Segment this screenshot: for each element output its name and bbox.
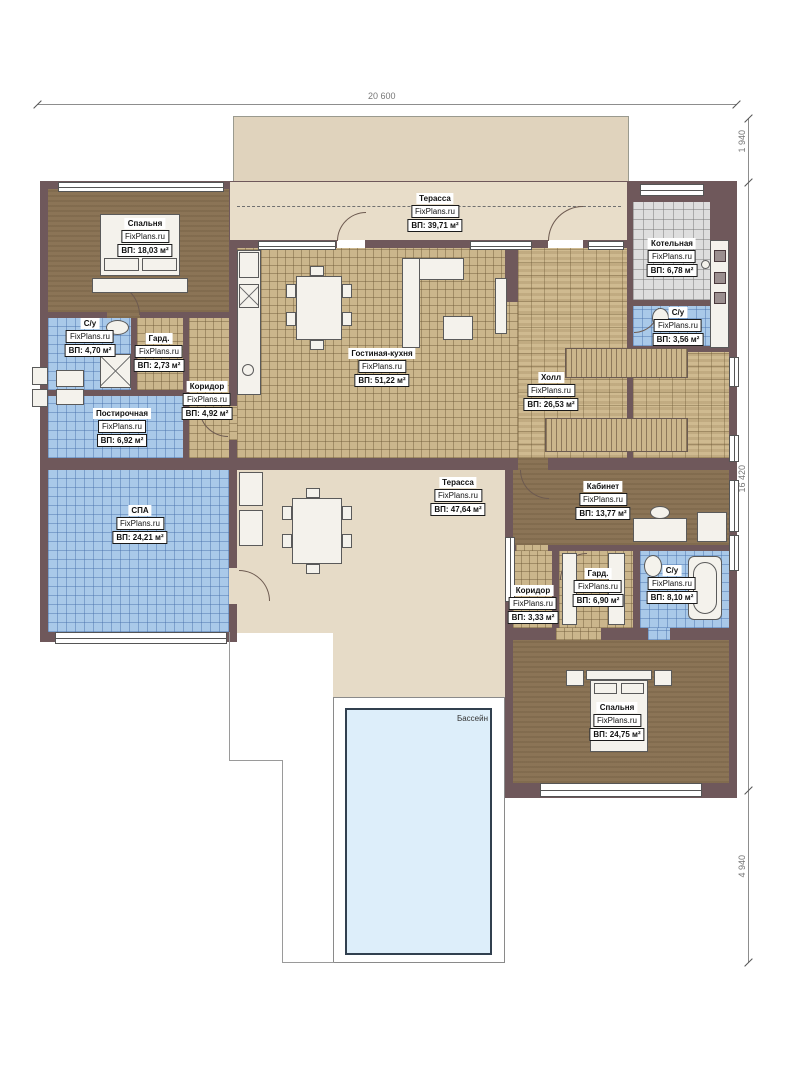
chair — [342, 312, 352, 326]
room-label-wc-boiler: С/у FixPlans.ru ВП: 3,56 м² — [653, 307, 704, 346]
room-label-wardrobe-right: Гард. FixPlans.ru ВП: 6,90 м² — [573, 568, 624, 607]
room-name: Коридор — [187, 381, 227, 392]
room-name: Спальня — [125, 218, 166, 229]
office-cabinet — [697, 512, 727, 542]
wall-mid-strip — [237, 462, 505, 470]
bed-bench — [92, 278, 188, 293]
room-area: ВП: 47,64 м² — [430, 503, 485, 516]
site-outline — [229, 760, 283, 761]
dim-top-label: 20 600 — [368, 91, 396, 101]
stove-icon — [239, 284, 259, 308]
dim-right-bottom-label: 4 940 — [737, 855, 747, 878]
spa-floor — [48, 470, 229, 632]
nightstand — [654, 670, 672, 686]
hall-wardrobe-2 — [545, 418, 688, 452]
pillow — [594, 683, 617, 694]
room-label-office: Кабинет FixPlans.ru ВП: 13,77 м² — [575, 481, 630, 520]
chair — [342, 534, 352, 548]
window-hall-right-1 — [729, 357, 739, 387]
room-area: ВП: 4,92 м² — [182, 407, 233, 420]
room-brand: FixPlans.ru — [527, 384, 575, 397]
hall-wardrobe-1 — [565, 348, 688, 378]
room-brand: FixPlans.ru — [98, 420, 146, 433]
window-office-right — [729, 480, 739, 532]
room-name: Постирочная — [93, 408, 151, 419]
room-name: Терасса — [439, 477, 477, 488]
shower-icon — [100, 354, 131, 388]
sofa-side — [402, 258, 420, 348]
room-label-bedroom-2: Спальня FixPlans.ru ВП: 24,75 м² — [589, 702, 644, 741]
chair — [306, 488, 320, 498]
door-threshold-hall — [548, 240, 583, 248]
room-name: Гостиная-кухня — [348, 348, 415, 359]
room-label-wc-right: С/у FixPlans.ru ВП: 8,10 м² — [647, 565, 698, 604]
room-area: ВП: 3,56 м² — [653, 333, 704, 346]
site-outline — [229, 632, 230, 760]
headboard — [586, 670, 652, 680]
sink-icon — [242, 364, 254, 376]
room-area: ВП: 24,21 м² — [112, 531, 167, 544]
desk — [633, 518, 687, 542]
room-brand: FixPlans.ru — [183, 393, 231, 406]
window-bedroom-2-bottom — [540, 783, 702, 797]
floor-plan: 20 600 1 940 16 420 4 940 — [0, 0, 792, 1080]
chair — [286, 312, 296, 326]
door-gap-spa-terrace — [229, 568, 237, 604]
window-terrace-wall-3 — [588, 241, 624, 250]
room-label-spa: СПА FixPlans.ru ВП: 24,21 м² — [112, 505, 167, 544]
room-brand: FixPlans.ru — [648, 577, 696, 590]
nightstand — [566, 670, 584, 686]
chair — [342, 506, 352, 520]
room-area: ВП: 26,53 м² — [523, 398, 578, 411]
room-label-terrace-top: Терасса FixPlans.ru ВП: 39,71 м² — [407, 193, 462, 232]
window-terrace-wall-1 — [258, 241, 336, 250]
room-label-corridor-left: Коридор FixPlans.ru ВП: 4,92 м² — [182, 381, 233, 420]
room-brand: FixPlans.ru — [411, 205, 459, 218]
chair — [342, 284, 352, 298]
room-name: Спальня — [597, 702, 638, 713]
chair — [286, 284, 296, 298]
chair — [306, 564, 320, 574]
door-threshold-living — [337, 240, 365, 248]
room-brand: FixPlans.ru — [509, 597, 557, 610]
boiler-sink-icon — [701, 260, 710, 269]
room-label-bedroom-1: Спальня FixPlans.ru ВП: 18,03 м² — [117, 218, 172, 257]
pillow — [142, 258, 177, 271]
room-label-wc-left: С/у FixPlans.ru ВП: 4,70 м² — [65, 318, 116, 357]
room-label-boiler: Котельная FixPlans.ru ВП: 6,78 м² — [647, 238, 698, 277]
room-brand: FixPlans.ru — [135, 345, 183, 358]
pier-left-1 — [32, 367, 48, 385]
dryer-icon — [56, 389, 84, 405]
room-name: С/у — [669, 307, 687, 318]
room-area: ВП: 4,70 м² — [65, 344, 116, 357]
room-name: С/у — [81, 318, 99, 329]
room-name: Котельная — [648, 238, 696, 249]
boiler-unit — [714, 250, 726, 262]
room-brand: FixPlans.ru — [574, 580, 622, 593]
door-gap-corridor-bedroom — [556, 628, 601, 640]
terrace-mid-floor-ext — [333, 633, 505, 697]
dim-right-top-label: 1 940 — [737, 130, 747, 153]
window-wc-right — [729, 535, 739, 571]
room-brand: FixPlans.ru — [579, 493, 627, 506]
outdoor-unit-1 — [239, 472, 263, 506]
desk-chair — [650, 506, 670, 519]
fridge-icon — [239, 252, 259, 278]
boiler-unit — [714, 272, 726, 284]
pool — [345, 708, 492, 955]
room-brand: FixPlans.ru — [66, 330, 114, 343]
room-brand: FixPlans.ru — [121, 230, 169, 243]
room-label-terrace-mid: Терасса FixPlans.ru ВП: 47,64 м² — [430, 477, 485, 516]
room-label-corridor-right: Коридор FixPlans.ru ВП: 3,33 м² — [508, 585, 559, 624]
room-brand: FixPlans.ru — [116, 517, 164, 530]
room-area: ВП: 13,77 м² — [575, 507, 630, 520]
washer-icon — [56, 370, 84, 387]
boiler-unit — [714, 292, 726, 304]
room-label-wardrobe-left: Гард. FixPlans.ru ВП: 2,73 м² — [134, 333, 185, 372]
terrace-table — [292, 498, 342, 564]
room-area: ВП: 3,33 м² — [508, 611, 559, 624]
window-bedroom-1-top — [58, 182, 224, 192]
room-name: СПА — [128, 505, 151, 516]
dim-line-top — [37, 104, 737, 105]
window-terrace-wall-2 — [470, 241, 532, 250]
site-outline — [282, 760, 283, 963]
room-brand: FixPlans.ru — [358, 360, 406, 373]
coffee-table — [443, 316, 473, 340]
room-area: ВП: 6,78 м² — [647, 264, 698, 277]
chair — [310, 266, 324, 276]
pier-left-2 — [32, 389, 48, 407]
room-label-hall: Холл FixPlans.ru ВП: 26,53 м² — [523, 372, 578, 411]
door-gap-hall-office — [518, 458, 548, 470]
room-brand: FixPlans.ru — [593, 714, 641, 727]
terrace-canopy — [233, 116, 629, 184]
dim-line-right — [748, 118, 749, 963]
cabinet-tall — [495, 278, 507, 334]
room-brand: FixPlans.ru — [648, 250, 696, 263]
chair — [282, 506, 292, 520]
site-outline — [282, 962, 334, 963]
pillow — [621, 683, 644, 694]
room-name: Гард. — [146, 333, 173, 344]
pool-label: Бассейн — [432, 714, 488, 723]
pillow — [104, 258, 139, 271]
room-name: Кабинет — [584, 481, 622, 492]
door-gap-wc-bedroom — [648, 628, 670, 640]
room-area: ВП: 2,73 м² — [134, 359, 185, 372]
room-area: ВП: 39,71 м² — [407, 219, 462, 232]
room-name: С/у — [663, 565, 681, 576]
room-label-living-kitchen: Гостиная-кухня FixPlans.ru ВП: 51,22 м² — [348, 348, 415, 387]
room-area: ВП: 24,75 м² — [589, 728, 644, 741]
window-spa-bottom — [55, 632, 227, 644]
chair — [310, 340, 324, 350]
chair — [282, 534, 292, 548]
room-area: ВП: 51,22 м² — [354, 374, 409, 387]
room-label-laundry: Постирочная FixPlans.ru ВП: 6,92 м² — [93, 408, 151, 447]
room-brand: FixPlans.ru — [654, 319, 702, 332]
room-area: ВП: 8,10 м² — [647, 591, 698, 604]
room-name: Коридор — [513, 585, 553, 596]
room-area: ВП: 6,90 м² — [573, 594, 624, 607]
window-boiler-top — [640, 184, 704, 196]
room-name: Холл — [538, 372, 564, 383]
dining-table — [296, 276, 342, 340]
outdoor-unit-2 — [239, 510, 263, 546]
room-name: Терасса — [416, 193, 454, 204]
room-name: Гард. — [585, 568, 612, 579]
window-hall-right-2 — [729, 435, 739, 462]
door-gap-office-corridor — [516, 545, 548, 551]
room-area: ВП: 18,03 м² — [117, 244, 172, 257]
room-area: ВП: 6,92 м² — [97, 434, 148, 447]
room-brand: FixPlans.ru — [434, 489, 482, 502]
